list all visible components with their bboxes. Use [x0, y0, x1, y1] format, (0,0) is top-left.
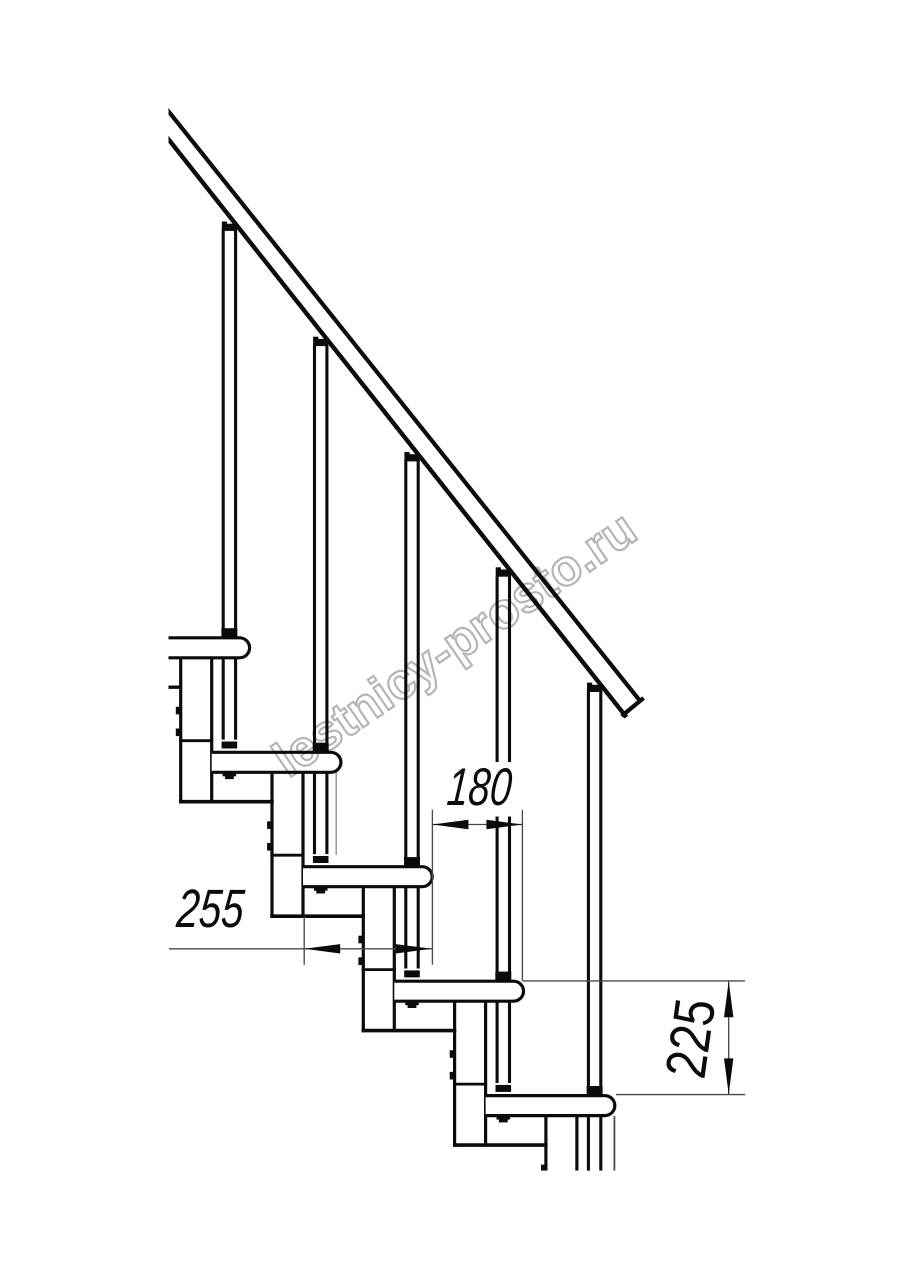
svg-text:180: 180	[445, 757, 515, 816]
svg-text:255: 255	[174, 879, 247, 939]
svg-text:225: 225	[653, 1000, 729, 1079]
